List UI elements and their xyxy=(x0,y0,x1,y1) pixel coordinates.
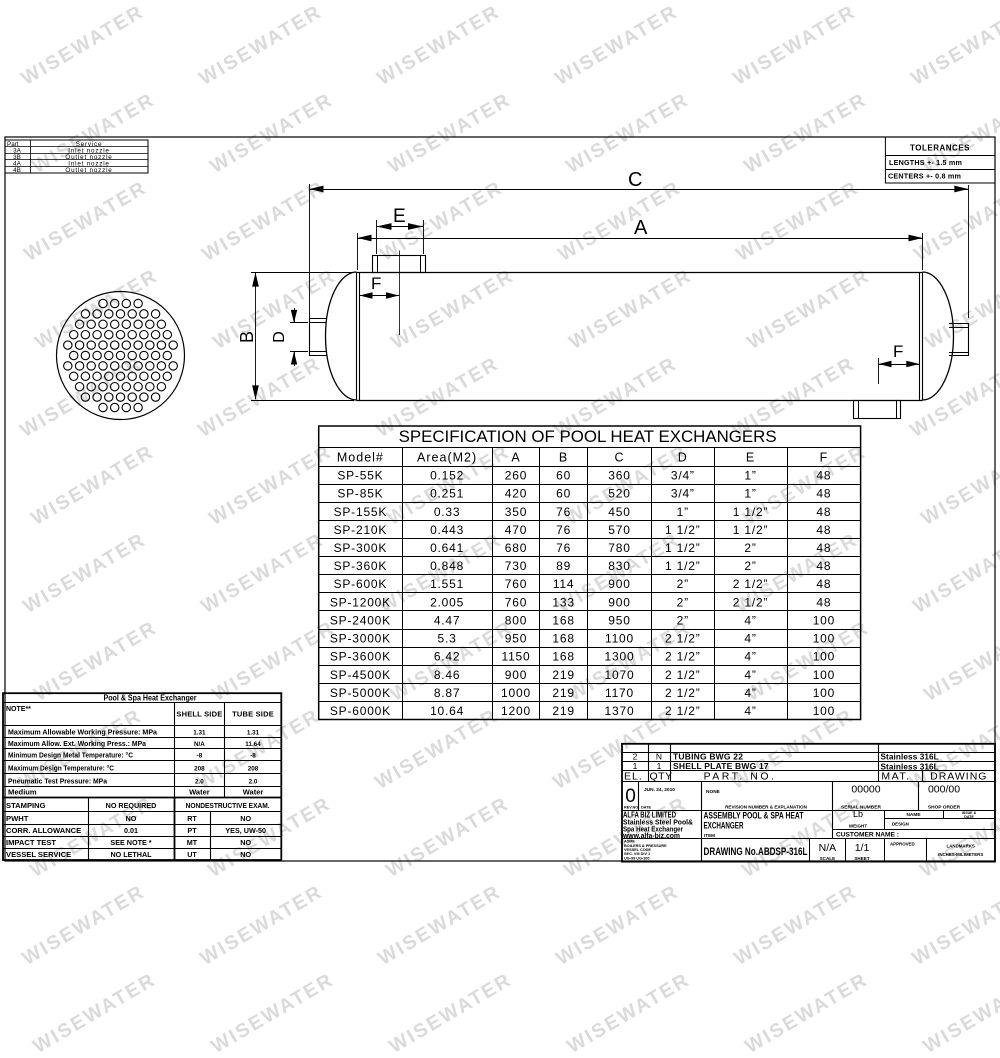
svg-text:1”: 1” xyxy=(677,505,689,519)
svg-text:NONE: NONE xyxy=(706,789,721,795)
svg-text:E: E xyxy=(746,451,755,465)
svg-text:5.3: 5.3 xyxy=(438,632,457,646)
svg-text:0.152: 0.152 xyxy=(430,469,464,483)
svg-text:100: 100 xyxy=(813,632,835,646)
svg-text:Maximum Design Temperature: °C: Maximum Design Temperature: °C xyxy=(8,763,114,772)
svg-text:EXCHANGER: EXCHANGER xyxy=(704,821,744,831)
svg-text:0.641: 0.641 xyxy=(430,541,464,555)
svg-text:1.31: 1.31 xyxy=(193,730,206,737)
svg-text:168: 168 xyxy=(552,650,574,664)
svg-text:TUBING BWG 22: TUBING BWG 22 xyxy=(673,752,743,762)
svg-text:SHEET: SHEET xyxy=(854,856,870,861)
svg-text:76: 76 xyxy=(556,523,571,537)
svg-text:76: 76 xyxy=(556,505,571,519)
svg-text:SP-3600K: SP-3600K xyxy=(330,650,391,664)
svg-text:60: 60 xyxy=(556,487,571,501)
svg-text:-8: -8 xyxy=(197,753,203,760)
svg-text:1300: 1300 xyxy=(605,650,635,664)
svg-text:0.01: 0.01 xyxy=(124,826,138,835)
svg-text:100: 100 xyxy=(813,686,835,700)
svg-text:1 1/2”: 1 1/2” xyxy=(733,523,769,537)
svg-text:SPECIFICATION OF POOL HEAT EXC: SPECIFICATION OF POOL HEAT EXCHANGERS xyxy=(399,427,777,446)
svg-text:100: 100 xyxy=(813,650,835,664)
svg-text:PART. NO.: PART. NO. xyxy=(704,771,777,783)
svg-text:SP-5000K: SP-5000K xyxy=(330,686,391,700)
svg-text:450: 450 xyxy=(608,505,630,519)
svg-text:2”: 2” xyxy=(744,559,756,573)
svg-text:2 1/2”: 2 1/2” xyxy=(733,577,769,591)
svg-text:4”: 4” xyxy=(744,668,756,682)
svg-text:680: 680 xyxy=(505,541,527,555)
svg-text:1100: 1100 xyxy=(605,632,634,646)
svg-text:C: C xyxy=(614,451,624,465)
svg-text:PT: PT xyxy=(187,826,197,835)
svg-text:SHOP ORDER: SHOP ORDER xyxy=(928,804,961,810)
svg-text:0.443: 0.443 xyxy=(430,523,464,537)
svg-text:10.64: 10.64 xyxy=(430,704,464,718)
svg-text:-8: -8 xyxy=(250,753,256,760)
svg-text:1”: 1” xyxy=(744,469,756,483)
svg-text:UT: UT xyxy=(187,850,197,859)
svg-text:1 1/2”: 1 1/2” xyxy=(665,541,701,555)
svg-text:SEE NOTE *: SEE NOTE * xyxy=(110,838,151,847)
svg-text:NAME: NAME xyxy=(906,812,921,818)
svg-text:1”: 1” xyxy=(744,487,756,501)
svg-text:1070: 1070 xyxy=(605,668,635,682)
svg-text:YES, UW-50: YES, UW-50 xyxy=(225,826,266,835)
svg-text:48: 48 xyxy=(816,541,831,555)
svg-text:0: 0 xyxy=(625,786,636,807)
svg-text:360: 360 xyxy=(608,469,630,483)
svg-text:SHELL SIDE: SHELL SIDE xyxy=(176,710,222,719)
svg-text:ASSEMBLY POOL & SPA HEAT: ASSEMBLY POOL & SPA HEAT xyxy=(704,811,804,821)
svg-text:LANDMARKS: LANDMARKS xyxy=(947,843,975,848)
svg-text:REVISION NUMBER & EXPLANATION: REVISION NUMBER & EXPLANATION xyxy=(725,804,808,809)
svg-text:219: 219 xyxy=(552,686,574,700)
svg-text:470: 470 xyxy=(505,523,527,537)
svg-text:Water: Water xyxy=(189,788,210,797)
svg-text:F: F xyxy=(820,451,829,465)
svg-text:CUSTOMER NAME :: CUSTOMER NAME : xyxy=(836,831,899,838)
svg-text:100: 100 xyxy=(813,668,835,682)
svg-text:Minimum Design Metal Temperatu: Minimum Design Metal Temperature: °C xyxy=(8,751,133,760)
svg-text:48: 48 xyxy=(816,505,831,519)
svg-text:TOLERANCES: TOLERANCES xyxy=(910,144,970,153)
svg-text:JUN. 24, 2010: JUN. 24, 2010 xyxy=(644,787,675,793)
svg-text:730: 730 xyxy=(505,559,527,573)
svg-text:Stainless 316L: Stainless 316L xyxy=(881,753,939,762)
svg-text:TUBE SIDE: TUBE SIDE xyxy=(232,710,274,719)
svg-text:EL.: EL. xyxy=(624,771,643,783)
svg-text:114: 114 xyxy=(553,577,575,591)
svg-text:NO: NO xyxy=(240,850,251,859)
svg-text:00000: 00000 xyxy=(851,784,880,796)
svg-text:B: B xyxy=(559,451,568,465)
svg-text:760: 760 xyxy=(505,577,527,591)
svg-text:48: 48 xyxy=(816,595,831,609)
svg-text:SP-55K: SP-55K xyxy=(337,469,383,483)
svg-text:SCALE: SCALE xyxy=(820,856,836,861)
svg-text:SP-155K: SP-155K xyxy=(334,505,388,519)
svg-text:SP-2400K: SP-2400K xyxy=(330,614,391,628)
svg-text:48: 48 xyxy=(816,523,831,537)
svg-text:1 1/2”: 1 1/2” xyxy=(665,523,701,537)
svg-text:Medium: Medium xyxy=(8,788,37,797)
svg-text:2.0: 2.0 xyxy=(195,778,204,785)
svg-text:A: A xyxy=(634,217,648,239)
svg-text:48: 48 xyxy=(816,487,831,501)
svg-text:QTY: QTY xyxy=(650,771,673,783)
svg-text:900: 900 xyxy=(608,595,630,609)
svg-text:6.42: 6.42 xyxy=(434,650,461,664)
svg-text:NO: NO xyxy=(126,814,137,823)
svg-text:800: 800 xyxy=(505,614,527,628)
svg-text:SP-1200K: SP-1200K xyxy=(330,595,391,609)
svg-text:NO: NO xyxy=(240,838,251,847)
svg-text:D: D xyxy=(271,331,288,343)
svg-text:F: F xyxy=(371,274,381,293)
svg-text:DESIGN: DESIGN xyxy=(892,821,909,826)
svg-text:SP-600K: SP-600K xyxy=(334,577,388,591)
svg-text:PWHT: PWHT xyxy=(6,814,29,823)
svg-text:1170: 1170 xyxy=(605,686,634,700)
svg-text:780: 780 xyxy=(608,541,630,555)
svg-text:208: 208 xyxy=(248,765,259,772)
svg-text:DATE: DATE xyxy=(964,815,974,819)
svg-text:F: F xyxy=(893,342,903,361)
svg-text:C: C xyxy=(628,169,642,191)
svg-text:Pneumatic Test Pressure: MPa: Pneumatic Test Pressure: MPa xyxy=(8,776,108,785)
svg-text:RT: RT xyxy=(187,814,197,823)
svg-text:520: 520 xyxy=(608,487,630,501)
svg-text:NO: NO xyxy=(240,814,251,823)
svg-text:1.31: 1.31 xyxy=(247,730,260,737)
svg-text:48: 48 xyxy=(816,559,831,573)
svg-text:950: 950 xyxy=(505,632,527,646)
svg-text:60: 60 xyxy=(556,469,571,483)
svg-text:E: E xyxy=(393,206,406,227)
svg-text:89: 89 xyxy=(556,559,571,573)
svg-text:4.47: 4.47 xyxy=(434,614,461,628)
svg-text:760: 760 xyxy=(505,595,527,609)
svg-text:1000: 1000 xyxy=(501,686,531,700)
svg-text:2”: 2” xyxy=(677,614,689,628)
svg-text:SP-6000K: SP-6000K xyxy=(330,704,391,718)
svg-text:DATE: DATE xyxy=(641,805,652,809)
svg-text:CENTERS +- 0.8 mm: CENTERS +- 0.8 mm xyxy=(888,172,961,181)
svg-text:DRAWING: DRAWING xyxy=(930,771,987,783)
svg-text:SP-300K: SP-300K xyxy=(334,541,388,555)
svg-text:168: 168 xyxy=(552,614,574,628)
svg-text:350: 350 xyxy=(505,505,527,519)
svg-text:1 1/2”: 1 1/2” xyxy=(665,559,701,573)
svg-text:SP-4500K: SP-4500K xyxy=(330,668,391,682)
svg-text:1.551: 1.551 xyxy=(430,577,464,591)
svg-text:Outlet nozzle: Outlet nozzle xyxy=(65,167,112,174)
svg-text:570: 570 xyxy=(608,523,630,537)
svg-text:Lb: Lb xyxy=(853,809,863,819)
svg-text:8.46: 8.46 xyxy=(434,668,461,682)
svg-text:208: 208 xyxy=(194,765,205,772)
svg-text:4”: 4” xyxy=(744,650,756,664)
svg-text:LENGTHS +- 1.5 mm: LENGTHS +- 1.5 mm xyxy=(889,158,962,167)
svg-text:Maximum Allowable Working Pres: Maximum Allowable Working Pressure: MPa xyxy=(8,728,158,737)
svg-text:CORR. ALLOWANCE: CORR. ALLOWANCE xyxy=(6,826,81,835)
svg-text:D: D xyxy=(678,451,688,465)
svg-text:MT: MT xyxy=(187,838,198,847)
svg-text:4”: 4” xyxy=(744,704,756,718)
svg-text:0.251: 0.251 xyxy=(430,487,464,501)
svg-text:2.005: 2.005 xyxy=(430,595,464,609)
svg-text:900: 900 xyxy=(608,577,630,591)
svg-text:Area(M2): Area(M2) xyxy=(417,451,477,465)
svg-text:A: A xyxy=(511,451,520,465)
svg-text:2 1/2”: 2 1/2” xyxy=(665,686,701,700)
svg-text:48: 48 xyxy=(816,577,831,591)
svg-text:2”: 2” xyxy=(744,541,756,555)
svg-text:11.64: 11.64 xyxy=(245,741,261,748)
svg-text:950: 950 xyxy=(608,614,630,628)
svg-text:SP-210K: SP-210K xyxy=(334,523,388,537)
svg-text:Water: Water xyxy=(243,788,264,797)
svg-text:APPROVED: APPROVED xyxy=(890,841,915,846)
svg-text:133: 133 xyxy=(552,595,574,609)
svg-text:STAMPING: STAMPING xyxy=(6,801,46,810)
svg-text:3/4”: 3/4” xyxy=(671,487,695,501)
svg-text:8.87: 8.87 xyxy=(434,686,461,700)
svg-text:IMPACT TEST: IMPACT TEST xyxy=(6,838,56,847)
svg-text:2 1/2”: 2 1/2” xyxy=(665,704,701,718)
svg-text:219: 219 xyxy=(552,704,574,718)
svg-text:1/1: 1/1 xyxy=(855,842,870,854)
svg-text:830: 830 xyxy=(608,559,630,573)
svg-text:REV.NO.: REV.NO. xyxy=(624,805,639,809)
svg-text:Pool & Spa Heat Exchanger: Pool & Spa Heat Exchanger xyxy=(104,693,197,702)
svg-text:1150: 1150 xyxy=(501,650,530,664)
svg-text:4B: 4B xyxy=(13,167,21,174)
svg-text:48: 48 xyxy=(816,469,831,483)
svg-text:ITEM: ITEM xyxy=(704,833,715,838)
svg-text:SP-360K: SP-360K xyxy=(334,559,388,573)
svg-text:4”: 4” xyxy=(744,614,756,628)
svg-text:SP-85K: SP-85K xyxy=(337,487,383,501)
svg-text:2.0: 2.0 xyxy=(249,778,258,785)
svg-text:2: 2 xyxy=(633,752,638,762)
svg-text:MAT.: MAT. xyxy=(881,771,910,783)
svg-text:WEIGHT: WEIGHT xyxy=(849,823,868,828)
svg-text:N/A: N/A xyxy=(194,741,205,748)
svg-text:420: 420 xyxy=(505,487,527,501)
svg-text:1200: 1200 xyxy=(501,704,531,718)
svg-text:219: 219 xyxy=(552,668,574,682)
svg-text:168: 168 xyxy=(552,632,574,646)
svg-text:100: 100 xyxy=(813,614,835,628)
svg-text:SP-3000K: SP-3000K xyxy=(330,632,391,646)
svg-text:1 1/2”: 1 1/2” xyxy=(733,505,769,519)
svg-text:NO LETHAL: NO LETHAL xyxy=(110,850,152,859)
svg-text:INCHES-MILIMETERS: INCHES-MILIMETERS xyxy=(938,852,983,857)
svg-text:NOTE**: NOTE** xyxy=(6,706,31,713)
svg-text:2”: 2” xyxy=(677,577,689,591)
svg-text:4”: 4” xyxy=(744,686,756,700)
svg-text:NONDESTRUCTIVE EXAM.: NONDESTRUCTIVE EXAM. xyxy=(186,801,270,810)
svg-text:DRAWING No.ABDSP-316L: DRAWING No.ABDSP-316L xyxy=(704,846,808,858)
svg-text:2 1/2”: 2 1/2” xyxy=(733,595,769,609)
svg-text:260: 260 xyxy=(505,469,527,483)
svg-text:UG-99 UG-100: UG-99 UG-100 xyxy=(624,856,650,860)
svg-text:0.848: 0.848 xyxy=(430,559,464,573)
svg-text:Maximum Allow. Ext. Working Pr: Maximum Allow. Ext. Working Press.: MPa xyxy=(8,739,147,748)
svg-text:N/A: N/A xyxy=(819,842,837,854)
svg-text:2 1/2”: 2 1/2” xyxy=(665,668,701,682)
svg-text:000/00: 000/00 xyxy=(928,784,960,796)
svg-text:100: 100 xyxy=(813,704,835,718)
svg-text:0.33: 0.33 xyxy=(434,505,461,519)
svg-text:2 1/2”: 2 1/2” xyxy=(665,632,701,646)
svg-text:900: 900 xyxy=(505,668,527,682)
svg-text:N: N xyxy=(656,752,662,762)
svg-text:VESSEL SERVICE: VESSEL SERVICE xyxy=(6,850,71,859)
svg-text:2 1/2”: 2 1/2” xyxy=(665,650,701,664)
svg-text:76: 76 xyxy=(556,541,571,555)
svg-text:4”: 4” xyxy=(744,632,756,646)
svg-text:2”: 2” xyxy=(677,595,689,609)
svg-text:3/4”: 3/4” xyxy=(671,469,695,483)
svg-text:1370: 1370 xyxy=(605,704,635,718)
svg-text:NO REQUIRED: NO REQUIRED xyxy=(106,801,157,810)
svg-text:Model#: Model# xyxy=(337,451,384,465)
svg-text:B: B xyxy=(237,331,257,343)
